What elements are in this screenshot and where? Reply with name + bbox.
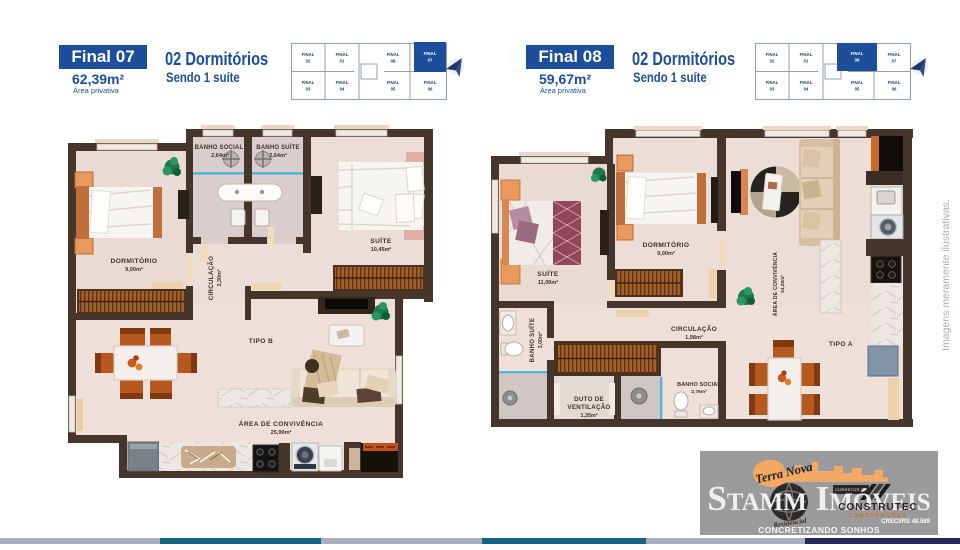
svg-text:11,00m²: 11,00m² xyxy=(538,279,559,286)
svg-text:FINAL: FINAL xyxy=(800,80,813,85)
svg-text:VENTILAÇÃO: VENTILAÇÃO xyxy=(567,404,610,411)
svg-text:BANHO SOCIAL: BANHO SOCIAL xyxy=(677,382,721,388)
svg-text:03: 03 xyxy=(306,87,311,92)
svg-text:ÁREA DE CONVIVÊNCIA: ÁREA DE CONVIVÊNCIA xyxy=(239,419,324,428)
svg-text:DUTO DE: DUTO DE xyxy=(574,396,604,403)
svg-text:SUÍTE: SUÍTE xyxy=(537,269,559,278)
svg-text:08: 08 xyxy=(391,59,396,64)
svg-text:3,00m²: 3,00m² xyxy=(538,332,544,349)
svg-text:BANHO SUÍTE: BANHO SUÍTE xyxy=(256,143,300,151)
svg-text:DORMITÓRIO: DORMITÓRIO xyxy=(111,256,158,265)
svg-text:25,90m²: 25,90m² xyxy=(271,429,292,436)
svg-text:FINAL: FINAL xyxy=(851,80,864,85)
svg-text:2,64m²: 2,64m² xyxy=(211,152,229,159)
svg-text:FINAL: FINAL xyxy=(800,52,813,57)
svg-text:FINAL: FINAL xyxy=(336,52,349,57)
svg-text:FINAL: FINAL xyxy=(766,52,779,57)
svg-text:9,00m²: 9,00m² xyxy=(125,266,143,273)
svg-text:02: 02 xyxy=(770,59,775,64)
svg-text:06: 06 xyxy=(428,87,433,92)
svg-text:06: 06 xyxy=(892,87,897,92)
svg-text:FINAL: FINAL xyxy=(766,80,779,85)
svg-text:FINAL: FINAL xyxy=(387,52,400,57)
svg-text:BANHO SOCIAL: BANHO SOCIAL xyxy=(195,145,244,151)
svg-text:FINAL: FINAL xyxy=(424,80,437,85)
svg-text:04: 04 xyxy=(340,87,345,92)
svg-text:2,76m²: 2,76m² xyxy=(691,389,707,395)
svg-text:07: 07 xyxy=(892,59,897,64)
svg-text:CIRCULAÇÃO: CIRCULAÇÃO xyxy=(208,256,215,301)
svg-text:FINAL: FINAL xyxy=(302,80,315,85)
svg-text:01: 01 xyxy=(340,59,345,64)
svg-text:FINAL: FINAL xyxy=(336,80,349,85)
svg-text:1,35m²: 1,35m² xyxy=(580,413,597,419)
svg-text:03: 03 xyxy=(770,87,775,92)
svg-text:01: 01 xyxy=(804,59,809,64)
svg-text:2,64m²: 2,64m² xyxy=(269,152,287,159)
svg-text:FINAL: FINAL xyxy=(851,51,864,56)
svg-text:DORMITÓRIO: DORMITÓRIO xyxy=(643,240,690,249)
svg-text:FINAL: FINAL xyxy=(424,51,437,56)
svg-text:ÁREA DE CONVIVÊNCIA: ÁREA DE CONVIVÊNCIA xyxy=(771,252,779,316)
svg-text:TIPO A: TIPO A xyxy=(829,341,853,348)
svg-text:08: 08 xyxy=(855,58,860,63)
svg-text:CIRCULAÇÃO: CIRCULAÇÃO xyxy=(671,324,717,333)
svg-text:2,30m²: 2,30m² xyxy=(217,269,223,286)
svg-text:9,00m²: 9,00m² xyxy=(657,250,675,257)
svg-text:04: 04 xyxy=(804,87,809,92)
svg-text:FINAL: FINAL xyxy=(888,80,901,85)
svg-text:10,45m²: 10,45m² xyxy=(371,246,392,253)
svg-text:34,28m²: 34,28m² xyxy=(780,275,786,293)
svg-text:FINAL: FINAL xyxy=(888,52,901,57)
svg-text:1,98m²: 1,98m² xyxy=(685,334,703,341)
svg-text:SUÍTE: SUÍTE xyxy=(370,236,392,245)
svg-text:FINAL: FINAL xyxy=(302,52,315,57)
svg-text:BANHO SUÍTE: BANHO SUÍTE xyxy=(528,318,536,363)
svg-text:05: 05 xyxy=(391,87,396,92)
svg-text:FINAL: FINAL xyxy=(387,80,400,85)
svg-text:02: 02 xyxy=(306,59,311,64)
svg-text:05: 05 xyxy=(855,87,860,92)
svg-text:07: 07 xyxy=(428,58,433,63)
svg-text:TIPO B: TIPO B xyxy=(249,338,273,345)
